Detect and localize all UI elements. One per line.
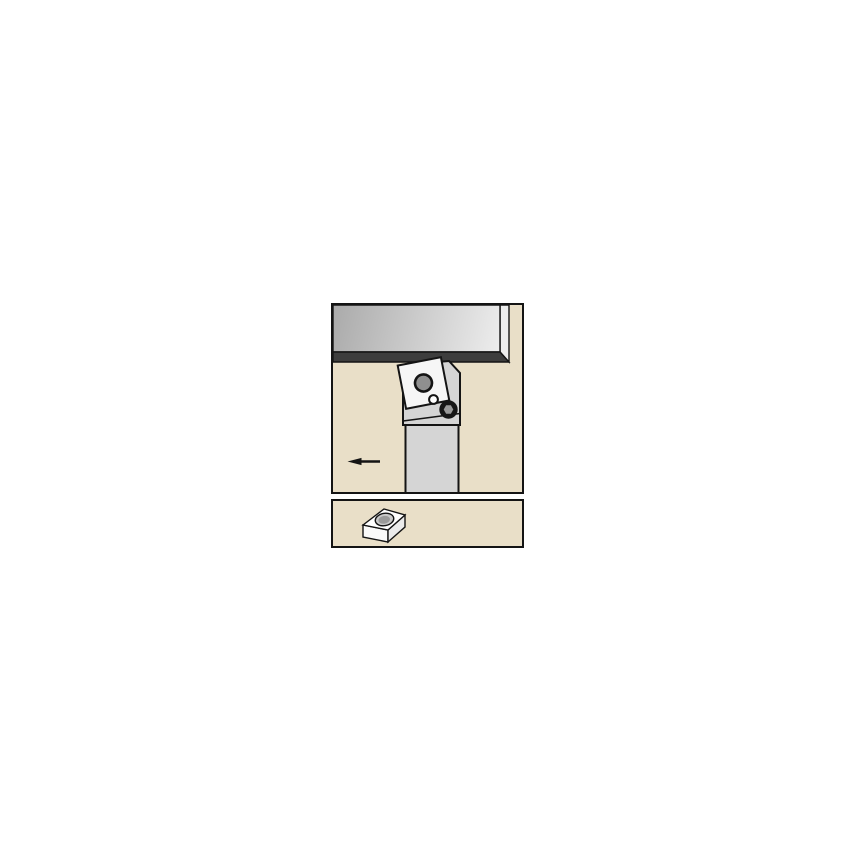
tool-holder-shank [406,425,459,493]
workpiece-body [333,305,500,352]
clamp-pin-icon [429,395,438,404]
square-insert-group [398,357,450,409]
insert-view-panel [331,499,524,548]
figure-canvas [0,0,854,854]
main-view-panel [331,303,524,494]
insert-view-frame [332,500,523,547]
